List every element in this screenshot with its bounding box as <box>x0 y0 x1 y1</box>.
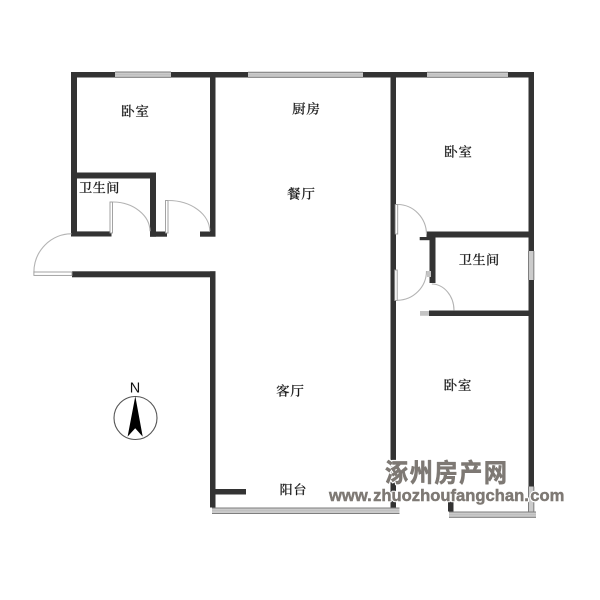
svg-text:N: N <box>130 381 140 397</box>
svg-text:www. zhuozhoufangchan. com: www. zhuozhoufangchan. com <box>328 486 564 505</box>
